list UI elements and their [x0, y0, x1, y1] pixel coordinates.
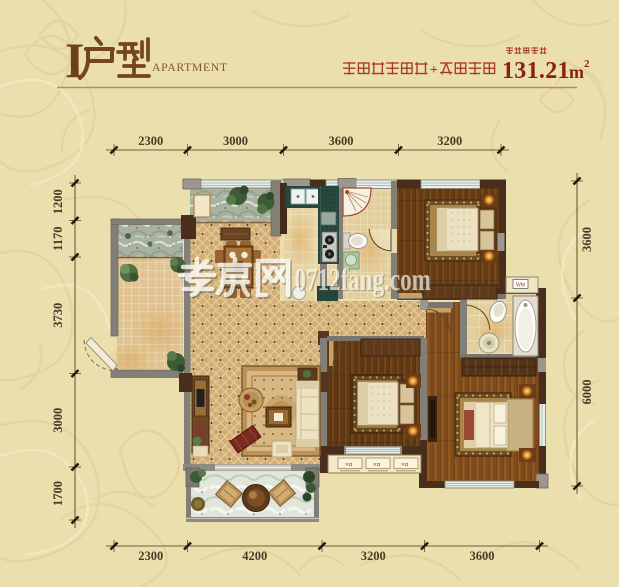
svg-text:×¤: ×¤ [373, 462, 381, 469]
svg-text:3200: 3200 [361, 549, 386, 563]
svg-text:I: I [65, 32, 84, 88]
svg-text:3000: 3000 [223, 134, 248, 148]
svg-text:1200: 1200 [51, 189, 65, 214]
svg-text:131.21: 131.21 [502, 58, 570, 84]
svg-text:3600: 3600 [580, 227, 594, 252]
svg-text:m: m [569, 62, 584, 82]
svg-text:2300: 2300 [138, 549, 163, 563]
svg-text:3200: 3200 [437, 134, 462, 148]
svg-text:6000: 6000 [580, 380, 594, 405]
svg-text:1170: 1170 [51, 227, 65, 251]
svg-text:+: + [430, 63, 438, 78]
svg-text:×¤: ×¤ [401, 462, 409, 469]
svg-text:4200: 4200 [242, 549, 267, 563]
svg-text:3730: 3730 [51, 303, 65, 328]
svg-text:3000: 3000 [51, 408, 65, 433]
svg-text:×¤: ×¤ [345, 462, 353, 469]
svg-text:APARTMENT: APARTMENT [152, 60, 228, 74]
svg-text:0712fang.com: 0712fang.com [295, 262, 431, 298]
svg-text:1700: 1700 [51, 481, 65, 506]
svg-text:3600: 3600 [470, 549, 495, 563]
svg-text:2: 2 [584, 58, 590, 70]
svg-text:3600: 3600 [329, 134, 354, 148]
svg-text:WM: WM [516, 283, 525, 289]
svg-text:2300: 2300 [138, 134, 163, 148]
